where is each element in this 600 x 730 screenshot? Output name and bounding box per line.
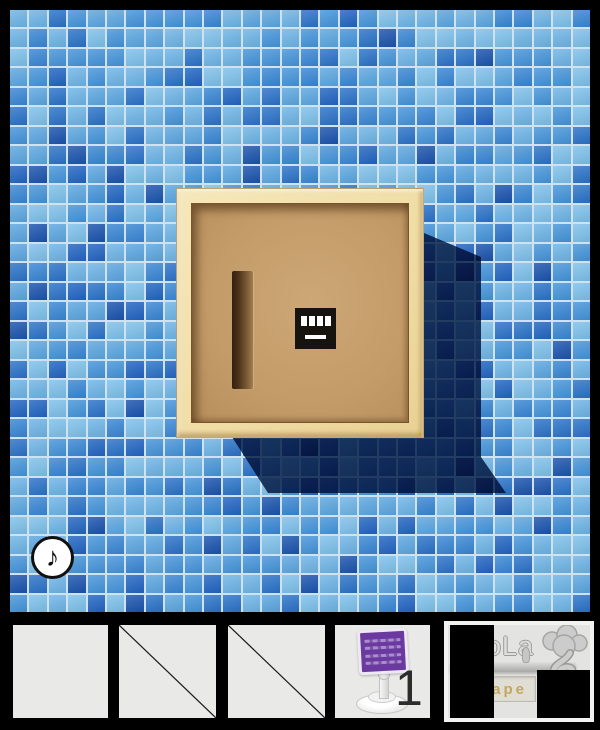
keypad-panel[interactable] [295, 308, 336, 349]
game-window: { "scene": { "wall": { "cols": 30, "rows… [0, 0, 600, 730]
logo-plaque-text: ape [492, 681, 527, 698]
door-handle-groove[interactable] [232, 271, 253, 389]
wooden-box[interactable] [176, 188, 424, 438]
music-note-icon: ♪ [46, 544, 60, 571]
empty-slot-cross-line [119, 625, 216, 718]
inventory-slot-1[interactable] [13, 625, 108, 718]
inventory-slot-4[interactable]: 1 [335, 625, 430, 718]
keypad-dash [305, 335, 326, 339]
logo-small-figure [522, 647, 530, 663]
inventory-slot-3[interactable] [228, 625, 325, 718]
censor-rect-left [450, 625, 494, 718]
censor-rect-right [537, 670, 590, 718]
brand-logo-panel: oLa ape [444, 621, 594, 722]
game-scene: ♪ [10, 10, 590, 612]
box-door-panel[interactable] [191, 203, 409, 423]
inventory-slot-2[interactable] [119, 625, 216, 718]
keypad-digit-cells [295, 316, 336, 326]
item-count-badge: 1 [395, 659, 423, 717]
music-toggle-button[interactable]: ♪ [31, 536, 74, 579]
empty-slot-cross-line [228, 625, 325, 718]
